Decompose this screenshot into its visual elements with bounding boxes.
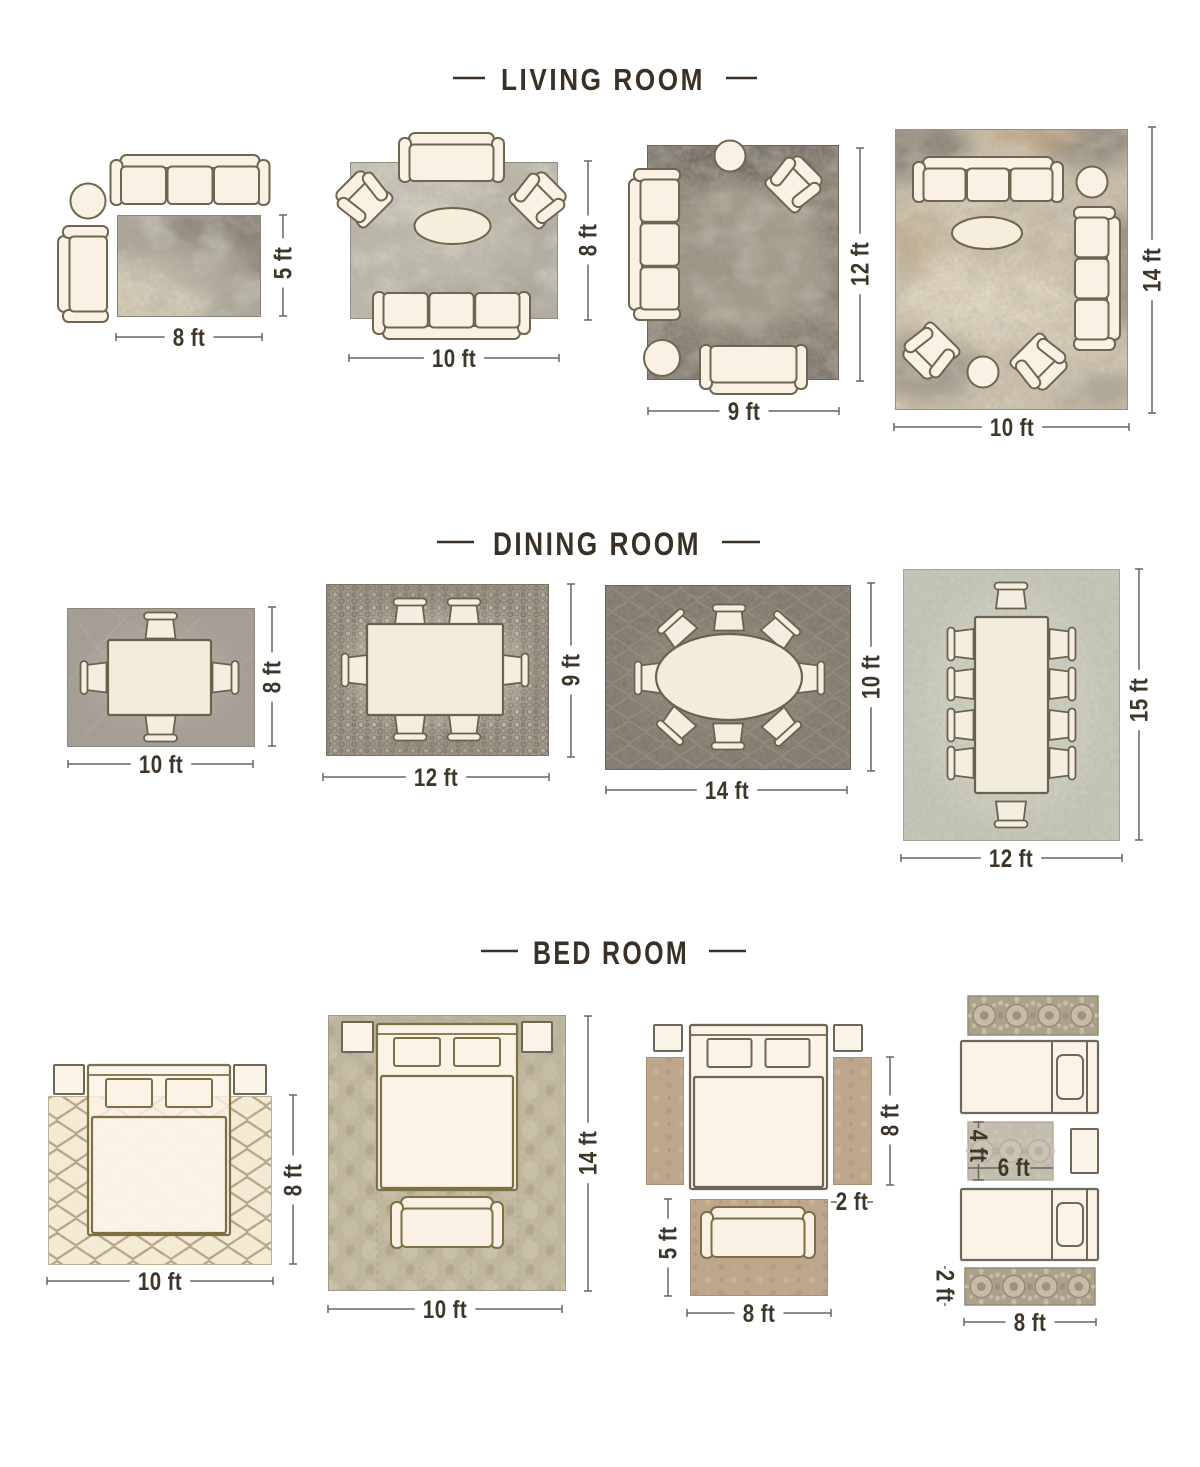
svg-text:2 ft: 2 ft xyxy=(931,1270,959,1302)
svg-text:10 ft: 10 ft xyxy=(990,413,1034,441)
svg-text:12 ft: 12 ft xyxy=(846,242,874,286)
svg-text:9 ft: 9 ft xyxy=(557,654,585,686)
svg-text:8 ft: 8 ft xyxy=(574,224,602,256)
svg-text:10 ft: 10 ft xyxy=(857,655,885,699)
svg-text:BED ROOM: BED ROOM xyxy=(533,935,689,971)
svg-text:14 ft: 14 ft xyxy=(705,776,749,804)
svg-text:10 ft: 10 ft xyxy=(432,344,476,372)
svg-text:DINING ROOM: DINING ROOM xyxy=(493,526,701,562)
svg-text:10 ft: 10 ft xyxy=(423,1295,467,1323)
svg-text:15 ft: 15 ft xyxy=(1125,678,1153,722)
svg-text:5 ft: 5 ft xyxy=(654,1227,682,1259)
svg-text:8 ft: 8 ft xyxy=(1014,1308,1046,1336)
svg-text:10 ft: 10 ft xyxy=(138,1267,182,1295)
svg-text:8 ft: 8 ft xyxy=(743,1299,775,1327)
svg-text:6 ft: 6 ft xyxy=(998,1153,1030,1181)
svg-text:14 ft: 14 ft xyxy=(1138,248,1166,292)
svg-text:12 ft: 12 ft xyxy=(989,844,1033,872)
svg-text:4 ft: 4 ft xyxy=(964,1130,992,1162)
svg-text:8 ft: 8 ft xyxy=(258,661,286,693)
svg-text:14 ft: 14 ft xyxy=(574,1131,602,1175)
svg-text:LIVING ROOM: LIVING ROOM xyxy=(501,63,705,97)
svg-text:10 ft: 10 ft xyxy=(139,750,183,778)
svg-text:8 ft: 8 ft xyxy=(876,1104,904,1136)
svg-text:5 ft: 5 ft xyxy=(269,247,297,279)
svg-text:9 ft: 9 ft xyxy=(728,397,760,425)
svg-text:2 ft: 2 ft xyxy=(836,1187,868,1215)
svg-text:8 ft: 8 ft xyxy=(173,323,205,351)
svg-text:8 ft: 8 ft xyxy=(279,1164,307,1196)
svg-text:12 ft: 12 ft xyxy=(414,763,458,791)
